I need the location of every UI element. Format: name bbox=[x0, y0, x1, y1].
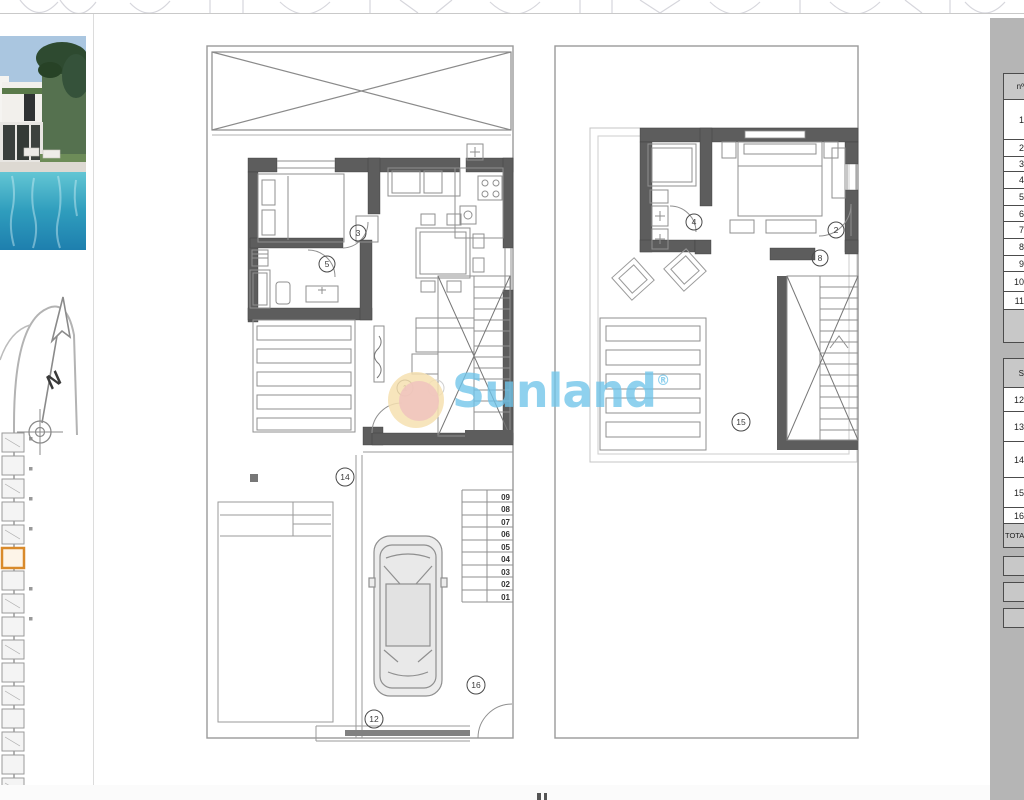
table-row: 10 bbox=[1003, 272, 1024, 292]
svg-text:09: 09 bbox=[501, 493, 510, 502]
ff-doors bbox=[670, 204, 851, 236]
table-row: 13 bbox=[1003, 412, 1024, 442]
plan-sheet: N bbox=[0, 0, 1024, 800]
north-label: N bbox=[42, 367, 67, 394]
ff-bed bbox=[722, 142, 838, 233]
bottom-strip bbox=[0, 785, 990, 800]
gf-garage bbox=[218, 452, 513, 738]
table-row: 15 bbox=[1003, 478, 1024, 508]
ff-stairs bbox=[777, 276, 858, 450]
table-band bbox=[1003, 310, 1024, 343]
svg-text:04: 04 bbox=[501, 555, 510, 564]
ff-window bbox=[745, 131, 805, 138]
table-row: 14 bbox=[1003, 442, 1024, 478]
table-row: 5 bbox=[1003, 189, 1024, 206]
table-header-row: nº bbox=[1003, 73, 1024, 100]
villa-photo bbox=[0, 36, 86, 250]
registered-mark: ® bbox=[656, 373, 669, 389]
gf-stair-wall bbox=[465, 430, 513, 444]
svg-text:12: 12 bbox=[369, 714, 379, 724]
svg-text:08: 08 bbox=[501, 505, 510, 514]
photo-lounger bbox=[24, 148, 39, 156]
table-row: 2 bbox=[1003, 140, 1024, 157]
table-band bbox=[1003, 582, 1024, 602]
ff-bathroom bbox=[648, 144, 696, 249]
watermark-text: Sunland bbox=[452, 364, 656, 418]
gf-column bbox=[250, 474, 258, 482]
sunland-logo-inner bbox=[399, 381, 439, 421]
svg-text:16: 16 bbox=[471, 680, 481, 690]
svg-text:14: 14 bbox=[340, 472, 350, 482]
svg-text:2: 2 bbox=[834, 225, 839, 235]
svg-text:4: 4 bbox=[692, 217, 697, 227]
gf-walkway bbox=[316, 726, 470, 741]
photo-pool-deck bbox=[0, 162, 86, 172]
top-faint-letters bbox=[0, 0, 1024, 14]
ff-window-right bbox=[847, 164, 856, 190]
north-arrow: N bbox=[17, 297, 70, 455]
gf-tv-unit bbox=[374, 326, 384, 382]
table-band bbox=[1003, 556, 1024, 576]
svg-text:03: 03 bbox=[501, 568, 510, 577]
table-row: 3 bbox=[1003, 157, 1024, 172]
next-page-mark bbox=[537, 793, 541, 800]
gf-car bbox=[369, 536, 447, 696]
table-row: 16 bbox=[1003, 508, 1024, 524]
svg-text:05: 05 bbox=[501, 543, 510, 552]
table-row: 1 bbox=[1003, 100, 1024, 140]
table-row: 11 bbox=[1003, 292, 1024, 310]
svg-text:3: 3 bbox=[356, 228, 361, 238]
gf-ext-steps: 09 08 07 06 05 04 03 02 01 bbox=[462, 490, 513, 602]
gf-bed bbox=[258, 174, 344, 242]
table-row: 9 bbox=[1003, 256, 1024, 272]
table-row: 8 bbox=[1003, 239, 1024, 256]
site-plot-highlighted bbox=[2, 548, 24, 568]
gf-louvers bbox=[253, 320, 355, 432]
table-row: 4 bbox=[1003, 172, 1024, 189]
table-section2-header: S bbox=[1003, 358, 1024, 388]
sunland-watermark: Sunland® bbox=[452, 368, 669, 414]
table-row: 7 bbox=[1003, 222, 1024, 239]
table-band bbox=[1003, 608, 1024, 628]
gf-windows bbox=[277, 161, 511, 290]
table-row: 12 bbox=[1003, 388, 1024, 412]
table-row: 6 bbox=[1003, 206, 1024, 222]
svg-text:15: 15 bbox=[736, 417, 746, 427]
svg-text:5: 5 bbox=[325, 259, 330, 269]
site-plan: N bbox=[0, 255, 95, 800]
next-page-mark bbox=[544, 793, 547, 800]
ff-loungers bbox=[612, 249, 706, 300]
site-posts bbox=[29, 437, 33, 621]
gf-roof-void bbox=[212, 52, 511, 135]
svg-text:07: 07 bbox=[501, 518, 510, 527]
svg-text:8: 8 bbox=[818, 253, 823, 263]
photo-window bbox=[24, 94, 35, 121]
svg-text:01: 01 bbox=[501, 593, 510, 602]
svg-text:02: 02 bbox=[501, 580, 510, 589]
areas-table: nº 1 2 3 4 5 6 7 8 9 10 11 S 12 13 bbox=[1003, 73, 1024, 628]
table-total-row: TOTAL bbox=[1003, 524, 1024, 548]
svg-text:06: 06 bbox=[501, 530, 510, 539]
